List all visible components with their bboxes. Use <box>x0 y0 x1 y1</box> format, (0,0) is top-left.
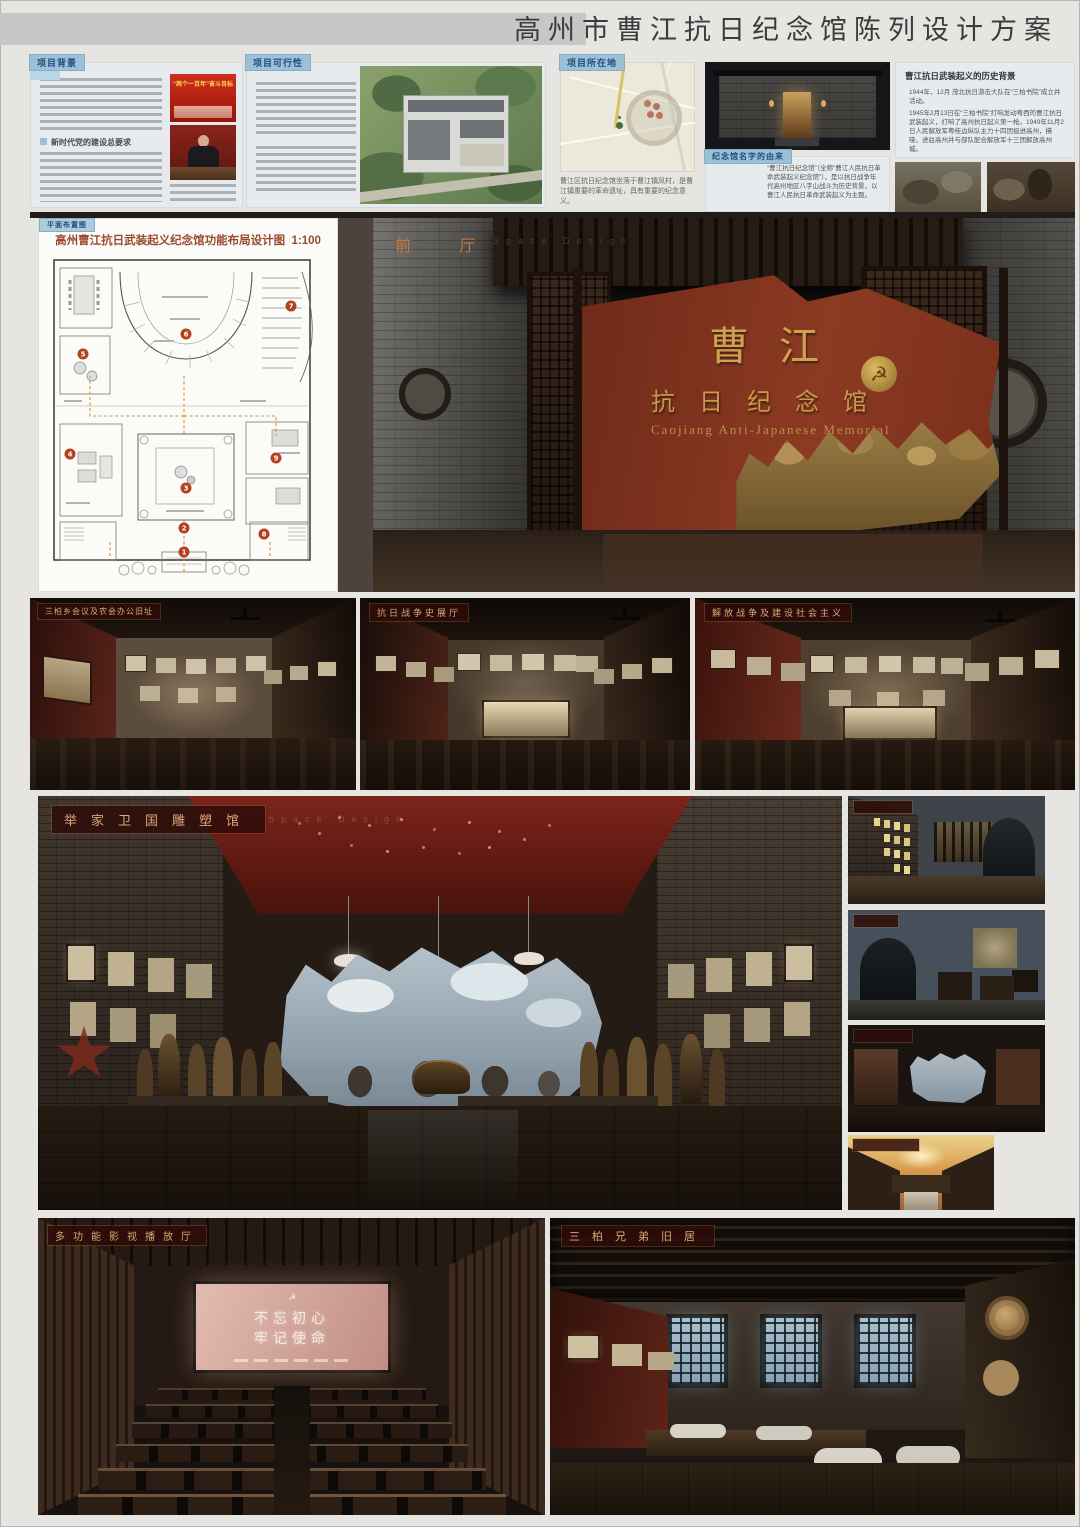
speaker-photo <box>170 125 236 180</box>
right-wall-photos <box>786 946 812 980</box>
svg-text:6: 6 <box>184 331 189 339</box>
courtyard-path <box>904 1192 938 1210</box>
wall-title-en: Caojiang Anti-Japanese Memorial <box>651 422 891 438</box>
party-emblem-icon: ☭ <box>861 356 897 392</box>
hall-liberation-label: 解放战争及建设社会主义 <box>705 604 851 621</box>
hall-floor <box>695 740 1075 790</box>
back-wall <box>114 638 274 740</box>
side-image-corridor <box>848 796 1045 904</box>
floor-reflection <box>603 534 983 592</box>
svg-text:5: 5 <box>81 351 86 359</box>
sculpture-sub-label: Space Design <box>268 814 408 824</box>
history-p2: 1945年2月13日在“三柏书院”打响发动粤西的曹江抗日武装起义，打响了高州抗日… <box>909 109 1064 154</box>
ceiling-fan-icon <box>610 608 640 622</box>
hall-liberation-rendering: 解放战争及建设社会主义 <box>695 598 1075 790</box>
banner-title: “两个一百年”奋斗目标 <box>170 79 236 88</box>
arched-opening <box>860 938 916 1004</box>
text-lines <box>256 146 356 194</box>
facade-lantern <box>769 100 774 107</box>
map-route-yellow <box>614 66 626 128</box>
text-lines <box>40 152 162 202</box>
left-wall-photos <box>711 650 735 668</box>
svg-text:1: 1 <box>182 549 187 557</box>
label-chip <box>854 1030 912 1042</box>
side-image-courtyard <box>848 1135 994 1210</box>
bedding-white <box>670 1424 726 1438</box>
floorplan-scale: 1:100 <box>291 235 320 247</box>
cinema-label: 多功能影视播放厅 <box>48 1226 206 1245</box>
floorplan-title: 高州曹江抗日武装起义纪念馆功能布局设计图 1:100 <box>38 232 338 248</box>
bullet-square <box>40 138 47 145</box>
hall-meeting-rendering: 三柏乡会议及农会办公旧址 <box>30 598 356 790</box>
round-carving-left <box>399 368 451 420</box>
ceiling-fan-icon <box>230 608 260 622</box>
section-heading: 新时代党的建设总要求 <box>51 137 131 148</box>
left-wall-photos <box>376 656 396 671</box>
tag-project-background: 项目背景 <box>30 55 84 70</box>
left-wall-photos <box>68 946 94 980</box>
window-center <box>764 1318 818 1384</box>
roof <box>408 100 504 112</box>
floorplan-panel: 高州曹江抗日武装起义纪念馆功能布局设计图 1:100 <box>38 218 338 592</box>
tag-feasibility: 项目可行性 <box>246 55 310 70</box>
side-image-room <box>848 910 1045 1020</box>
back-wall-photos <box>458 654 480 670</box>
movie-screen: ☭ 不忘初心 牢记使命 <box>196 1284 388 1370</box>
sub-tag <box>30 71 60 80</box>
right-wall <box>965 1258 1075 1458</box>
figure-suit <box>188 146 219 168</box>
center-hall <box>892 1175 950 1193</box>
courtyard <box>460 144 504 166</box>
wicker-tray-icon <box>985 1296 1029 1340</box>
hall-floor <box>360 740 690 790</box>
window-right <box>858 1318 912 1384</box>
ceiling-fan-icon <box>985 610 1015 624</box>
pendant-lamp-icon <box>528 896 529 954</box>
design-poster: 高州市曹江抗日纪念馆陈列设计方案 新时代党的建设总要求 “两个一百年”奋斗目标 … <box>0 0 1080 1527</box>
side-image-panorama <box>848 1025 1045 1132</box>
screen-line-1: 不忘初心 <box>196 1308 388 1328</box>
right-wall-photos <box>652 658 672 673</box>
svg-text:7: 7 <box>289 303 294 311</box>
column <box>999 268 1008 536</box>
history-title: 曹江抗日武装起义的历史背景 <box>905 70 1016 82</box>
svg-text:3: 3 <box>184 485 189 493</box>
facade-roofline <box>713 70 882 76</box>
panel-name-origin: “曹江抗日纪念馆”（全称“曹江人民抗日革命武装起义纪念馆”），是以抗日战争年代高… <box>705 156 890 212</box>
desk <box>170 167 236 180</box>
roof <box>408 120 450 160</box>
header-gray-bar <box>0 13 586 45</box>
svg-text:2: 2 <box>182 525 187 533</box>
document-wall <box>874 818 880 826</box>
text-lines <box>40 78 162 132</box>
panorama-floor <box>848 1106 1045 1132</box>
statue-platform <box>128 1096 328 1106</box>
pendant-lamp-icon <box>348 896 349 956</box>
column <box>573 268 582 536</box>
location-map <box>560 62 695 172</box>
window-left <box>670 1318 724 1384</box>
cinema-rendering: ☭ 不忘初心 牢记使命 多功能影视播放厅 <box>38 1218 545 1515</box>
hall-war-label: 抗日战争史展厅 <box>370 604 468 621</box>
facade-photo <box>705 62 890 150</box>
display-case <box>484 702 568 736</box>
facade-steps <box>775 138 819 146</box>
left-wall-mural <box>44 657 90 703</box>
side-murals <box>854 1049 898 1105</box>
room-floor <box>848 1000 1045 1020</box>
history-painting-2 <box>987 162 1075 212</box>
building-cluster <box>404 96 508 172</box>
floorplan-side-strip <box>338 218 373 592</box>
hall-war-rendering: 抗日战争史展厅 <box>360 598 690 790</box>
map-area-circle <box>626 90 682 146</box>
sculpture-label: 举家卫国雕塑馆 <box>52 806 265 833</box>
svg-text:8: 8 <box>262 531 267 539</box>
corridor-floor <box>848 876 1045 904</box>
caption-lines <box>170 184 236 204</box>
hall-meeting-label: 三柏乡会议及农会办公旧址 <box>38 604 160 619</box>
center-aisle <box>274 1386 310 1515</box>
panorama-mural <box>910 1051 986 1103</box>
sculpture-hall-rendering: 举家卫国雕塑馆 Space Design <box>38 796 842 1210</box>
lobby-label: 前 厅 <box>395 232 497 256</box>
tag-location: 项目所在地 <box>560 55 624 70</box>
banner-stage <box>174 106 232 118</box>
panel-project-background: 新时代党的建设总要求 “两个一百年”奋斗目标 <box>30 62 243 208</box>
tag-name-origin: 纪念馆名字的由来 <box>705 150 791 163</box>
residence-rendering: 三柏兄弟旧居 <box>550 1218 1075 1515</box>
facade-door <box>783 92 811 138</box>
aerial-rendering <box>360 66 542 204</box>
history-painting-1 <box>895 162 981 212</box>
residence-label: 三柏兄弟旧居 <box>562 1226 714 1246</box>
svg-text:9: 9 <box>274 455 279 463</box>
residence-floor <box>550 1463 1075 1515</box>
lobby-rendering: 曹 江 抗 日 纪 念 馆 Caojiang Anti-Japanese Mem… <box>373 218 1075 592</box>
wall-title-cn-1: 曹 江 <box>709 314 829 372</box>
statue-group-right <box>680 1034 702 1104</box>
right-wall-photos <box>318 662 336 676</box>
label-chip <box>854 801 912 813</box>
statue-horse <box>414 1060 470 1094</box>
screen-line-2: 牢记使命 <box>196 1328 388 1348</box>
svg-text:4: 4 <box>68 451 73 459</box>
lobby-sub-label: Space Design <box>493 236 633 246</box>
back-wall-photos <box>126 656 146 671</box>
left-brick-wall <box>38 796 223 1136</box>
panel-feasibility <box>246 62 546 208</box>
screen-subtext <box>234 1359 349 1362</box>
text-lines <box>256 82 356 138</box>
screen-emblem-icon: ☭ <box>288 1292 296 1303</box>
roof <box>460 120 504 138</box>
wall-title-cn-2: 抗 日 纪 念 馆 <box>651 382 876 417</box>
window-glow <box>973 928 1017 968</box>
label-chip <box>853 1139 919 1151</box>
history-p1: 1944年，12月 茂北抗日游击大队在“三柏书院”成立并活动。 <box>909 88 1061 106</box>
hall-floor <box>30 738 356 790</box>
page-title: 高州市曹江抗日纪念馆陈列设计方案 <box>514 8 1058 47</box>
tag-floorplan: 平面布置图 <box>40 219 94 231</box>
banner-photo: “两个一百年”奋斗目标 <box>170 74 236 122</box>
map-pin-icon <box>616 122 623 129</box>
panel-history: 曹江抗日武装起义的历史背景 1944年，12月 茂北抗日游击大队在“三柏书院”成… <box>895 62 1075 158</box>
location-caption: 曹江区抗日纪念馆坐落于曹江镇凤村，是曹江镇重要的革命遗址，具有重要的纪念意义。 <box>560 177 695 207</box>
floor-reflection <box>368 1110 518 1210</box>
right-wall-photos <box>1035 650 1059 668</box>
label-chip <box>854 915 898 927</box>
floor-plan: 1 2 3 4 5 6 7 8 9 <box>50 256 326 586</box>
floorplan-title-text: 高州曹江抗日武装起义纪念馆功能布局设计图 <box>55 235 285 247</box>
furniture-silhouette <box>938 972 972 1002</box>
statue-group-left <box>158 1034 180 1104</box>
display-panels <box>568 1336 598 1358</box>
back-wall-photos <box>811 656 833 672</box>
display-case <box>845 708 935 738</box>
origin-text: “曹江抗日纪念馆”（全称“曹江人民抗日革命武装起义纪念馆”），是以抗日战争年代高… <box>767 164 882 200</box>
